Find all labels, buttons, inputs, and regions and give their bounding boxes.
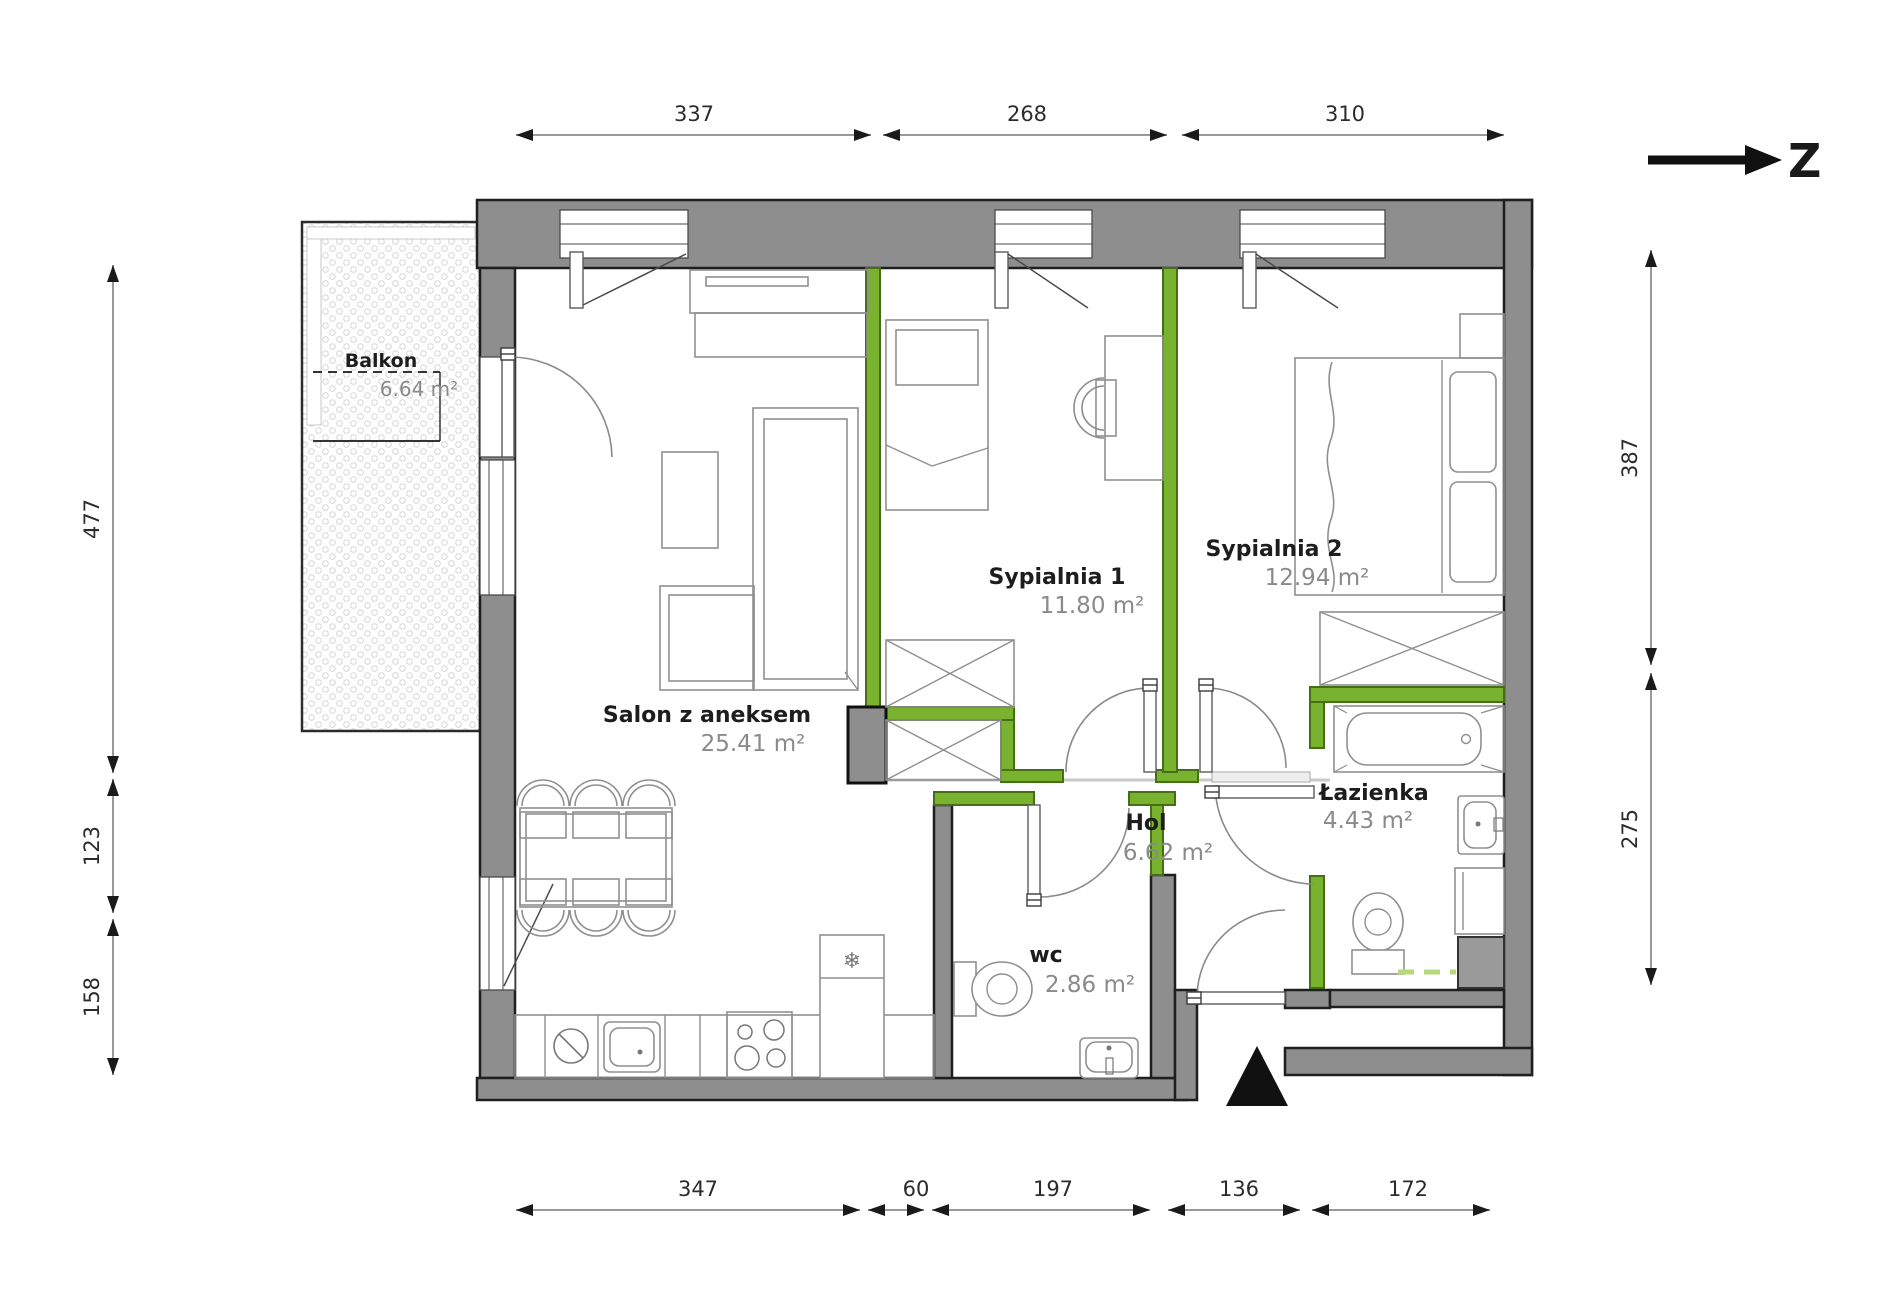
dimensions-top: 337 268 310 xyxy=(516,102,1504,135)
furniture-sypialnia1 xyxy=(886,320,1163,707)
area-sypialnia1: 11.80 m² xyxy=(1040,593,1145,619)
wc-toilet xyxy=(954,962,1032,1016)
wall-right xyxy=(1504,200,1532,1075)
area-sypialnia2: 12.94 m² xyxy=(1265,565,1370,591)
pillow-2 xyxy=(1450,482,1496,582)
area-wc: 2.86 m² xyxy=(1045,972,1135,998)
bath-basin xyxy=(1458,796,1504,854)
bathtub xyxy=(1334,706,1504,772)
wall-wc-left xyxy=(934,805,952,1078)
furniture-kitchen: ❄ xyxy=(515,935,934,1078)
dimensions-bottom: 347 60 197 136 172 xyxy=(516,1177,1490,1210)
dim-right-387: 387 xyxy=(1618,438,1642,478)
single-bed-blanket xyxy=(886,445,988,466)
green-wall-syp1-syp2 xyxy=(1163,268,1177,772)
green-wall-hol-north-a xyxy=(1001,770,1063,782)
dim-left-158: 158 xyxy=(80,977,104,1017)
door-lazienka xyxy=(1205,786,1314,884)
single-bed-pillow xyxy=(896,330,978,385)
label-sypialnia1: Sypialnia 1 xyxy=(989,565,1126,590)
furniture-salon xyxy=(517,270,868,936)
duct-shaft xyxy=(1458,937,1504,988)
area-balkon: 6.64 m² xyxy=(380,377,458,401)
green-wall-bath-left-lower xyxy=(1310,876,1324,988)
wall-wc-right xyxy=(1151,875,1175,1078)
snowflake-icon: ❄ xyxy=(843,949,861,974)
area-salon: 25.41 m² xyxy=(701,731,806,757)
green-wall-salon-syp1 xyxy=(866,268,880,707)
door-wc xyxy=(1027,805,1129,906)
door-sypialnia1 xyxy=(1066,679,1157,772)
green-wall-bath-top xyxy=(1310,687,1504,702)
dining-chairs xyxy=(517,780,675,936)
nightstand xyxy=(1460,314,1504,358)
green-wall-wc-top-right xyxy=(1129,792,1175,805)
wall-bath-south xyxy=(1330,990,1504,1007)
cooktop xyxy=(727,1012,792,1078)
desk-chair xyxy=(1074,378,1116,438)
pillow-1 xyxy=(1450,372,1496,472)
sofa-chaise xyxy=(660,586,754,690)
dim-bottom-60: 60 xyxy=(903,1177,930,1201)
entrance-door xyxy=(1187,910,1288,1106)
tv-screen xyxy=(706,277,808,286)
sofa-corner-seam xyxy=(845,672,858,690)
balcony xyxy=(302,222,480,731)
wall-entry-jamb-left xyxy=(1175,990,1197,1100)
dim-top-310: 310 xyxy=(1325,102,1365,126)
dim-bottom-197: 197 xyxy=(1033,1177,1073,1201)
west-arrow-head-icon xyxy=(1745,145,1782,175)
floor-plan-drawing: ❄ xyxy=(0,0,1900,1312)
window-left-upper xyxy=(480,460,515,595)
dining-table xyxy=(520,808,672,907)
balcony-floor xyxy=(302,222,480,731)
dim-top-337: 337 xyxy=(674,102,714,126)
bath-toilet xyxy=(1352,893,1404,974)
dimensions-left: 477 123 158 xyxy=(80,265,113,1075)
wardrobe-syp2 xyxy=(1320,612,1504,685)
window-left-lower xyxy=(480,877,553,990)
dim-bottom-347: 347 xyxy=(678,1177,718,1201)
fridge: ❄ xyxy=(820,935,884,1078)
dim-bottom-172: 172 xyxy=(1388,1177,1428,1201)
sofa-long-seat xyxy=(764,419,847,679)
sofa-long xyxy=(753,408,858,690)
area-hol: 6.62 m² xyxy=(1123,840,1213,866)
side-table xyxy=(662,452,718,548)
dim-left-123: 123 xyxy=(80,826,104,866)
green-wall-wc-top-left xyxy=(934,792,1034,805)
green-wall-niche-top xyxy=(866,707,1014,720)
label-lazienka: Łazienka xyxy=(1318,781,1428,806)
label-hol: Hol xyxy=(1125,811,1166,836)
single-bed xyxy=(886,320,988,510)
thin-wall-syp2-south xyxy=(1212,772,1310,782)
wardrobe-syp1 xyxy=(886,640,1014,707)
entrance-marker-triangle xyxy=(1226,1046,1288,1106)
washer-icon xyxy=(554,1029,588,1063)
door-sypialnia2 xyxy=(1199,679,1286,772)
washing-machine xyxy=(1455,868,1504,934)
dim-top-268: 268 xyxy=(1007,102,1047,126)
furniture-sypialnia2 xyxy=(1295,314,1504,685)
balcony-edge-strip-top xyxy=(307,227,475,239)
label-sypialnia2: Sypialnia 2 xyxy=(1206,537,1343,562)
area-lazienka: 4.43 m² xyxy=(1323,808,1413,834)
wc-basin xyxy=(1080,1038,1138,1078)
desk xyxy=(1105,336,1163,480)
dim-right-275: 275 xyxy=(1618,809,1642,849)
wardrobe-niche xyxy=(886,720,1001,780)
orientation-arrow: Z xyxy=(1648,134,1821,188)
label-salon: Salon z aneksem xyxy=(603,703,811,728)
west-letter: Z xyxy=(1788,134,1821,188)
sofa-chaise-seat xyxy=(669,595,754,681)
floor-plan-page: ❄ xyxy=(0,0,1900,1312)
balcony-door xyxy=(501,348,612,457)
dim-left-477: 477 xyxy=(80,499,104,539)
wall-bottom-left xyxy=(477,1078,1187,1100)
furniture-lazienka xyxy=(1334,706,1504,988)
label-wc: wc xyxy=(1029,943,1062,968)
label-balkon: Balkon xyxy=(345,350,418,372)
dimensions-right: 387 275 xyxy=(1618,250,1651,985)
wall-entry-jamb-right xyxy=(1285,990,1330,1008)
green-walls xyxy=(866,268,1504,988)
structural-pillar xyxy=(848,707,886,783)
dining-table-top xyxy=(526,814,666,901)
green-wall-niche-side xyxy=(1001,720,1014,770)
kitchen-sink xyxy=(604,1022,660,1072)
wall-bottom-right xyxy=(1285,1048,1532,1075)
tv-cabinet xyxy=(695,313,867,357)
dim-bottom-136: 136 xyxy=(1219,1177,1259,1201)
green-wall-bath-left-upper xyxy=(1310,702,1324,748)
balcony-edge-strip-left xyxy=(307,239,321,425)
